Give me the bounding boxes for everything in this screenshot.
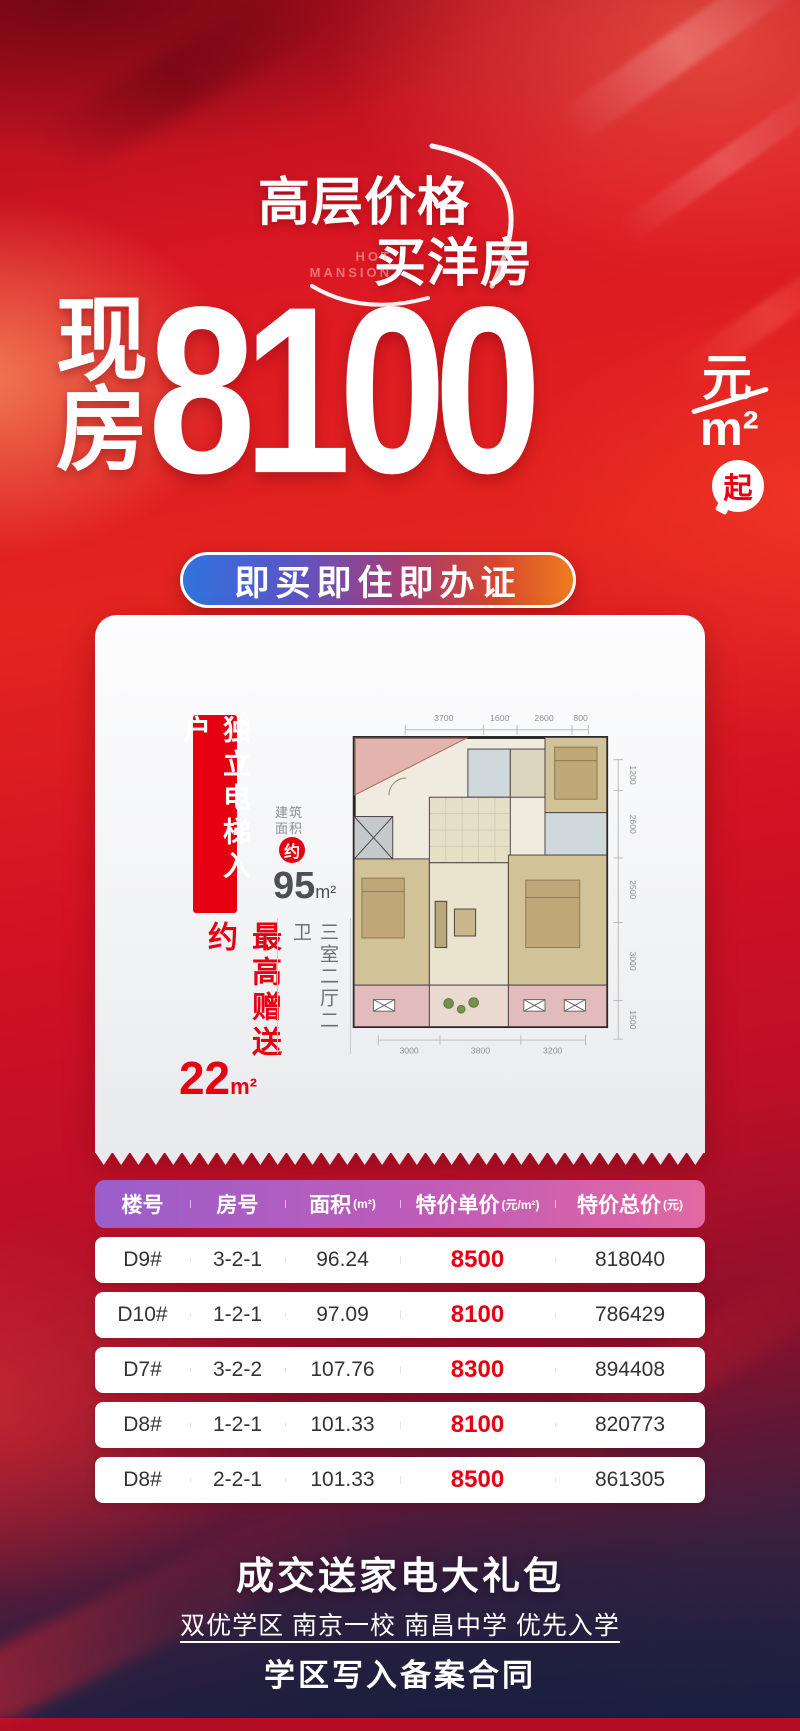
dimension-top: 3700 1600 2600 800 [405,713,588,734]
table-row: D9# 3-2-1 96.24 8500 818040 [95,1237,705,1283]
table-row: D8# 2-2-1 101.33 8500 861305 [95,1457,705,1503]
dim-top-4: 800 [573,713,588,723]
cell-building: D8# [95,1468,190,1492]
card-sawtooth-edge [95,1152,705,1165]
cell-unit-price: 8500 [400,1246,555,1274]
floorplan-card: 独立电梯入户 最高赠送约 22m² 建筑 面积 约 95m² 三室二厅二卫 37… [95,615,705,1153]
price-table: 楼号 房号 面积(m²) 特价单价(元/m²) 特价总价(元) D9# 3-2-… [95,1180,705,1503]
promo-ribbon: 即买即住即办证 [180,552,576,608]
footer-school-line: 双优学区 南京一校 南昌中学 优先入学 [0,1606,800,1642]
cell-building: D10# [95,1303,190,1327]
cell-total-price: 861305 [555,1468,705,1492]
cell-total-price: 894408 [555,1358,705,1382]
area-value: 95m² [273,865,336,908]
cell-room: 1-2-1 [190,1303,285,1327]
dimension-right: 1200 2600 2500 3000 1500 [613,760,637,1039]
cell-room: 2-2-1 [190,1468,285,1492]
cell-total-price: 820773 [555,1413,705,1437]
dim-right-3: 2500 [628,880,638,899]
floorplan-drawing: 3700 1600 2600 800 1200 2600 2500 3000 1… [333,707,651,1059]
table-row: D8# 1-2-1 101.33 8100 820773 [95,1402,705,1448]
dim-right-5: 1500 [628,1010,638,1029]
table-header-area: 面积(m²) [285,1189,400,1219]
table-row: D7# 3-2-2 107.76 8300 894408 [95,1347,705,1393]
cell-building: D9# [95,1248,190,1272]
cell-building: D8# [95,1413,190,1437]
cell-area: 101.33 [285,1468,400,1492]
price-prefix: 现 房 [56,296,148,476]
dim-right-4: 3000 [628,951,638,970]
cell-unit-price: 8100 [400,1411,555,1439]
table-header-total-price: 特价总价(元) [555,1189,705,1219]
cell-area: 107.76 [285,1358,400,1382]
table-row: D10# 1-2-1 97.09 8100 786429 [95,1292,705,1338]
dim-right-1: 1200 [628,765,638,784]
cell-area: 101.33 [285,1413,400,1437]
dim-top-3: 2600 [534,713,553,723]
cell-total-price: 818040 [555,1248,705,1272]
floorplan-rooms [354,737,606,1026]
dimension-bottom: 3000 3800 3200 [378,1035,585,1055]
dim-bottom-1: 3000 [399,1046,418,1056]
cell-building: D7# [95,1358,190,1382]
gift-value-number: 22 [179,1052,230,1104]
area-value-number: 95 [273,865,315,907]
elevator-banner: 独立电梯入户 [193,715,237,913]
cell-unit-price: 8300 [400,1356,555,1384]
approx-badge: 约 [279,837,305,863]
dim-top-2: 1600 [490,713,509,723]
cell-room: 3-2-2 [190,1358,285,1382]
price-unit-area: m² [700,402,759,457]
cell-room: 3-2-1 [190,1248,285,1272]
area-label: 建筑 面积 [275,805,331,836]
price-suffix-bubble: 起 [712,460,764,512]
footer-contract-line: 学区写入备案合同 [0,1650,800,1695]
area-label-line1: 建筑 [275,805,331,821]
table-body: D9# 3-2-1 96.24 8500 818040 D10# 1-2-1 9… [95,1237,705,1503]
price-prefix-char1: 现 [56,296,148,386]
table-header-building: 楼号 [95,1189,190,1219]
price-amount: 8100 [148,282,529,498]
cell-unit-price: 8500 [400,1466,555,1494]
gift-value: 22m² [153,1051,283,1105]
cell-total-price: 786429 [555,1303,705,1327]
cell-area: 97.09 [285,1303,400,1327]
footer-gift-line: 成交送家电大礼包 [0,1545,800,1600]
table-header-room: 房号 [190,1189,285,1219]
area-label-line2: 面积 [275,821,331,837]
gift-value-unit: m² [230,1074,257,1099]
price-prefix-char2: 房 [56,386,148,476]
table-header-unit-price: 特价单价(元/m²) [400,1189,555,1219]
table-header-row: 楼号 房号 面积(m²) 特价单价(元/m²) 特价总价(元) [95,1180,705,1228]
cell-unit-price: 8100 [400,1301,555,1329]
dim-bottom-2: 3800 [471,1046,490,1056]
dim-top-1: 3700 [434,713,453,723]
dim-bottom-3: 3200 [543,1046,562,1056]
cell-area: 96.24 [285,1248,400,1272]
cell-room: 1-2-1 [190,1413,285,1437]
dim-right-2: 2600 [628,815,638,834]
